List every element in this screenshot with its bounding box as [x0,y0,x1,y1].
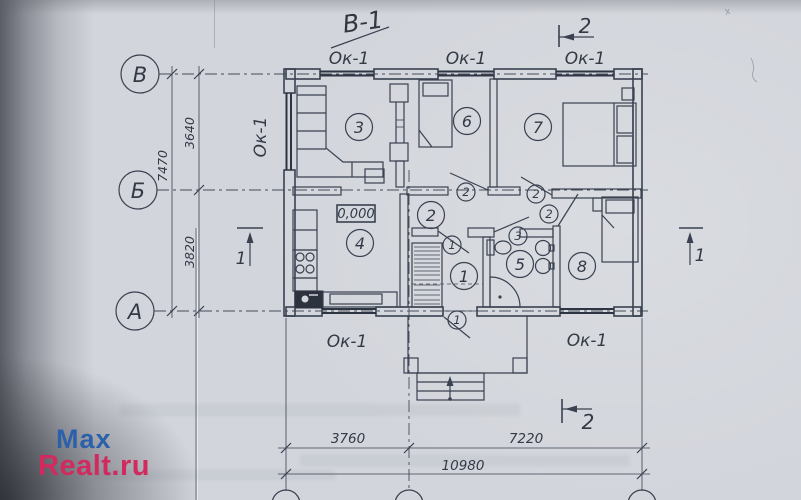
section-marks: 2 2 1 1 [236,14,706,434]
section-1-right: 1 [695,246,706,266]
axis-grid [154,74,648,491]
porch [404,316,527,401]
room-3-label: 3 [354,118,364,137]
room-2-label: 2 [426,206,436,225]
left-dimensions: 3640 7470 3820 [155,66,204,318]
window-label-bottom-1: Ок-1 [327,332,368,352]
door-leaf-room8 [558,194,578,226]
watermark-line1: Max [56,427,150,453]
door-tag-front: 1 [453,313,460,327]
elevation-value: 0,000 [337,207,374,222]
wardrobe [412,243,442,307]
window-top-3 [556,72,614,76]
axis-label-v: В [133,63,147,87]
door-tag-room6: 2 [462,185,469,199]
dim-3820: 3820 [182,236,197,268]
room-5-label: 5 [515,255,525,274]
bed-room8 [593,197,638,262]
door-tag-room8: 2 [545,207,552,221]
washbasin-2 [536,259,551,274]
bed-room6 [419,80,452,147]
dim-3760: 3760 [331,431,365,447]
section-1-left: 1 [236,249,247,269]
watermark-logo: Max Realt.ru [38,427,150,480]
blueprint-photo: В Б А 3640 7470 3820 [0,0,801,500]
section-2-bottom: 2 [582,410,595,434]
window-left [287,93,292,170]
window-label-bottom-2: Ок-1 [567,331,608,351]
room-7-label: 7 [533,118,544,137]
room-6-label: 6 [462,112,472,131]
window-top-2 [438,72,494,76]
dim-7220: 7220 [509,431,543,447]
section-2-top: 2 [579,14,592,38]
room-8-label: 8 [577,257,587,276]
elevation-mark: 0,000 [337,205,375,222]
dim-3640: 3640 [182,117,197,149]
bed-room7 [563,88,636,166]
axis-label-a: А [126,300,142,324]
pencil-marks [725,9,757,82]
axis-label-b: Б [131,179,145,203]
watermark-line2: Realt.ru [38,453,150,481]
room-1-label: 1 [459,267,469,286]
flue-partition [390,84,408,187]
floor-plan-drawing: В Б А 3640 7470 3820 [0,0,801,500]
window-label-left: Ок-1 [251,117,271,158]
door-tag-room7: 2 [532,187,539,201]
bottom-dimensions: 3760 7220 10980 [278,431,650,479]
sink [295,291,323,308]
room-4-label: 4 [355,234,365,253]
handwritten-section-title: В-1 [341,5,385,38]
window-label-top-3: Ок-1 [565,49,606,69]
kitchen-units [293,210,397,308]
dim-7470: 7470 [155,150,170,182]
corner-sofa [297,86,384,183]
corner-shower [490,277,520,307]
door-tag-bath: 3 [514,229,521,243]
washbasin-1 [536,241,551,256]
toilet-bowl [495,241,511,254]
window-label-top-2: Ок-1 [446,49,487,69]
window-top-1 [320,72,374,76]
door-tag-hall: 1 [448,238,455,252]
dim-10980: 10980 [442,458,485,474]
window-label-top-1: Ок-1 [329,49,370,69]
